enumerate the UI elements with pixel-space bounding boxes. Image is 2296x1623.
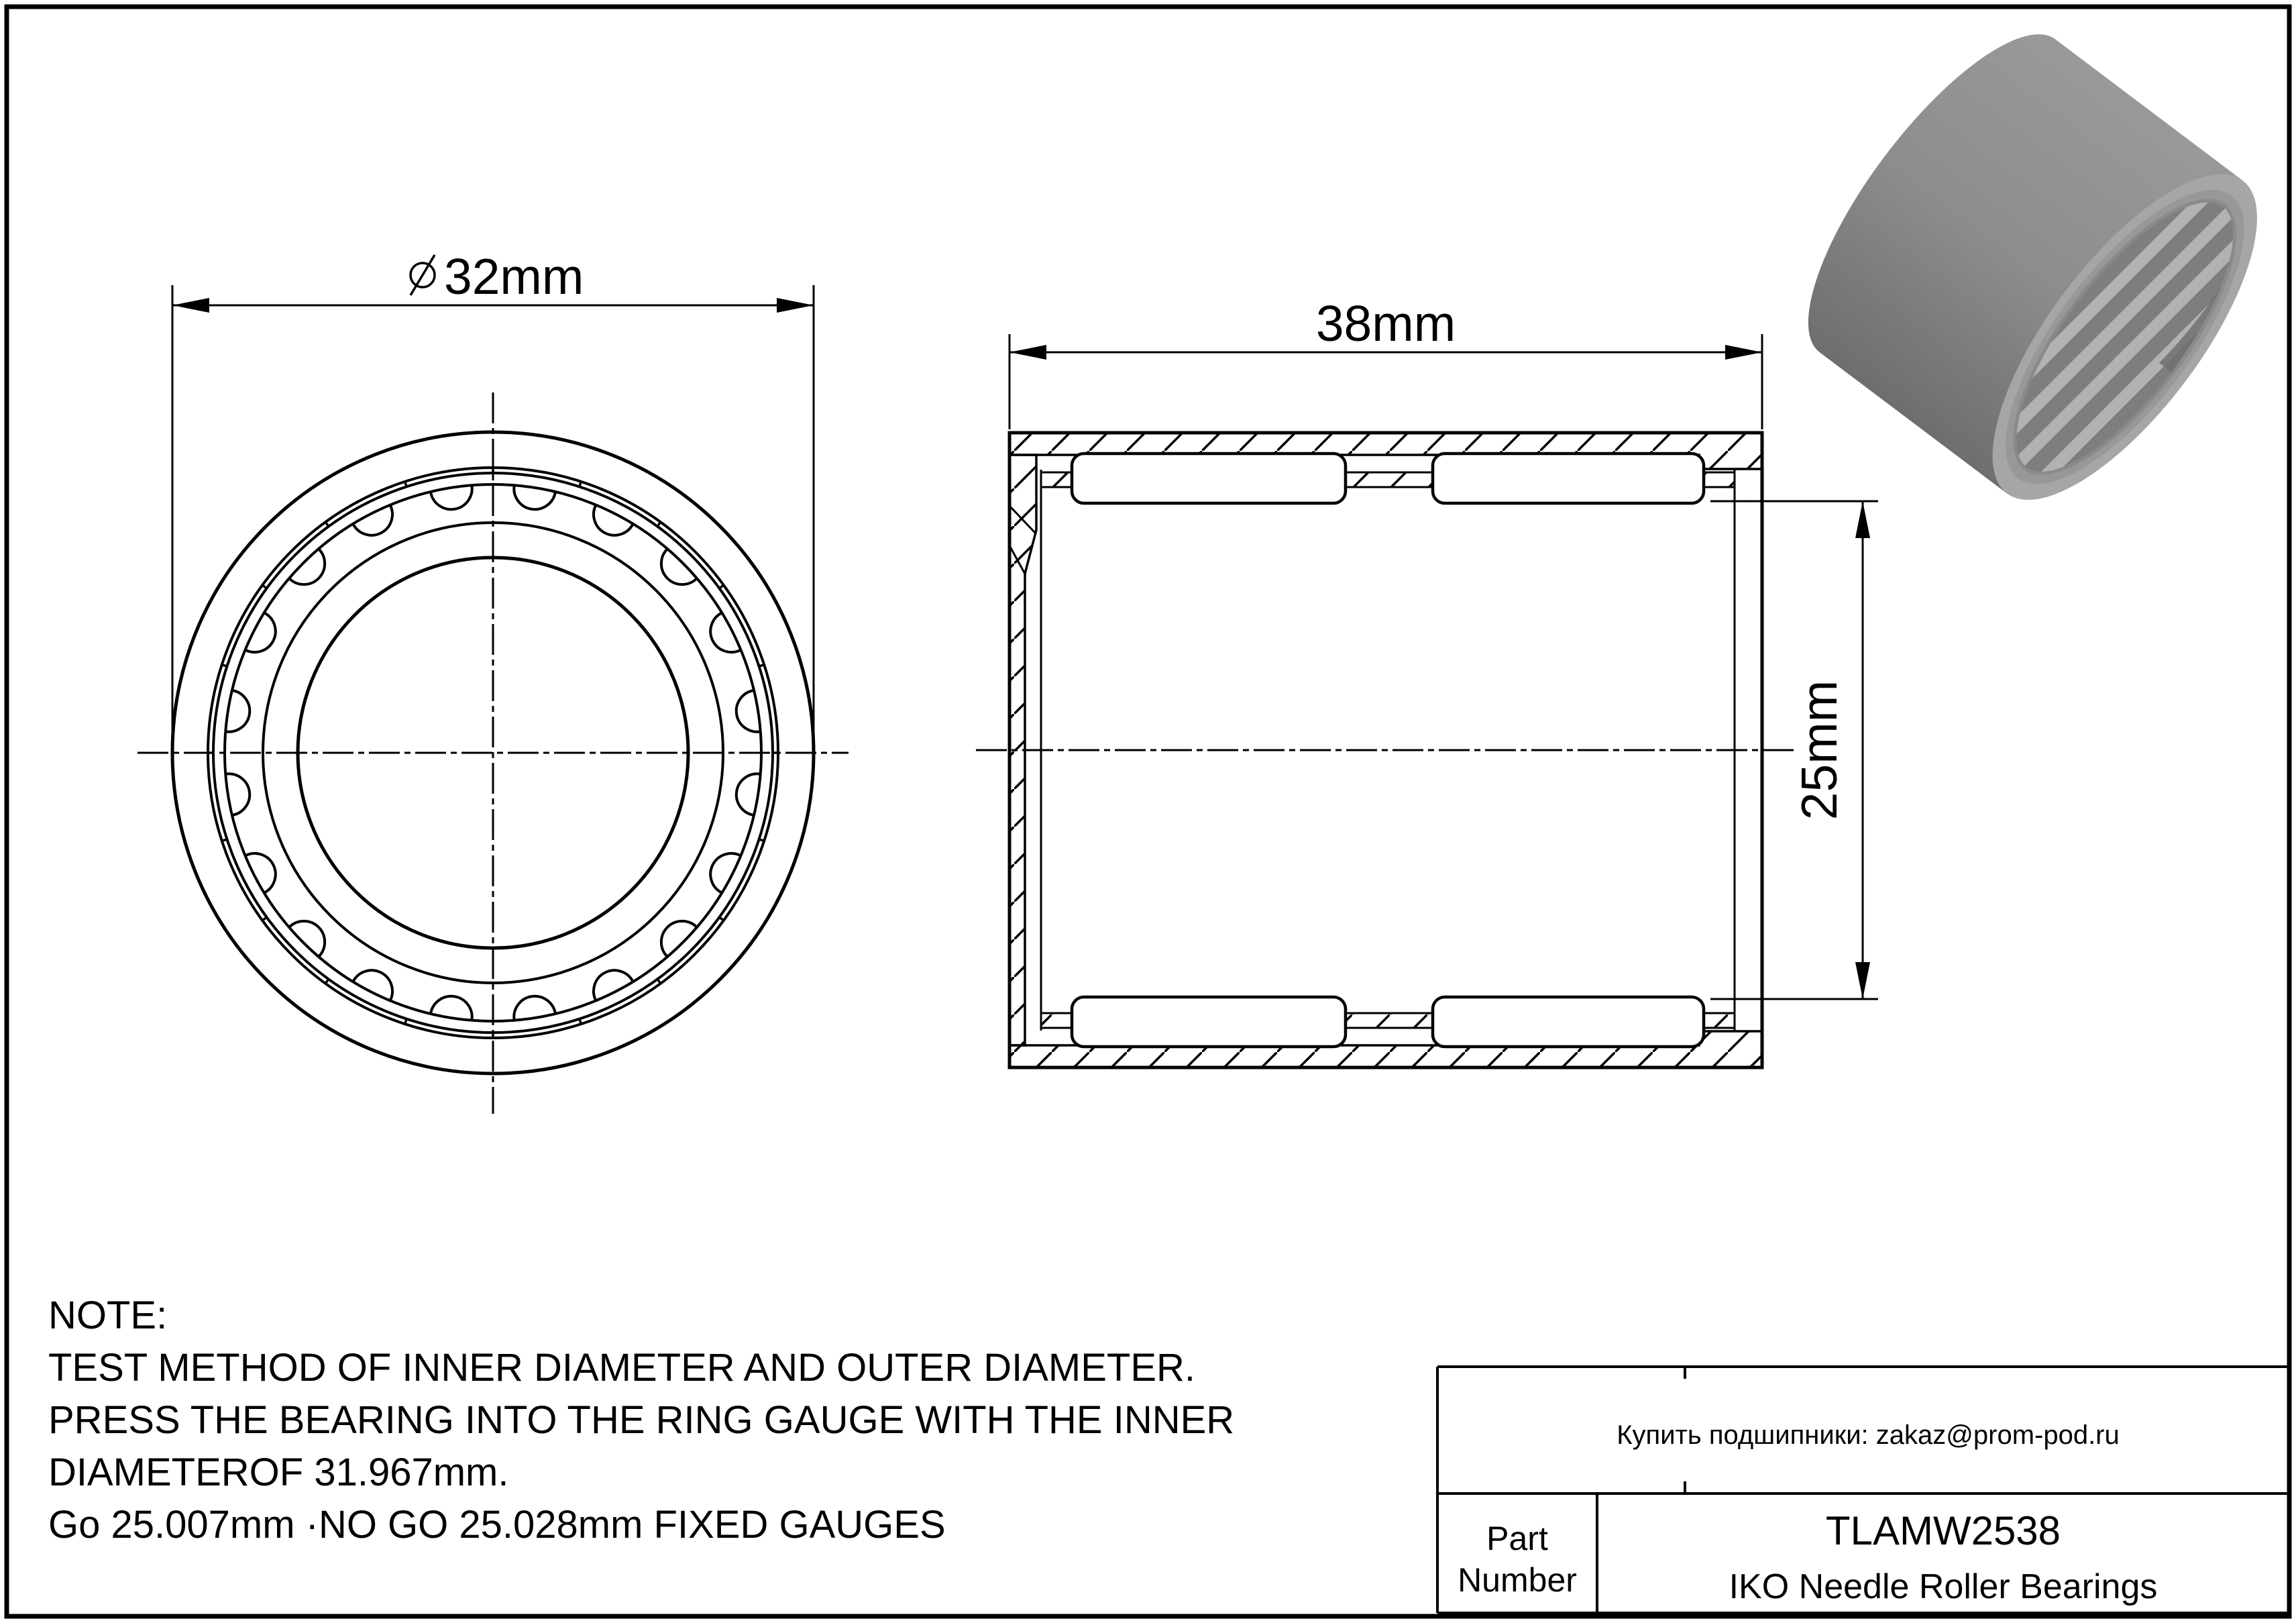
section-view <box>976 433 1798 1067</box>
diameter-symbol-icon <box>411 255 435 295</box>
arrow-down <box>1855 962 1870 999</box>
bearing-3d-render <box>1767 0 2296 542</box>
bore-dimension-label: 25mm <box>1791 680 1847 820</box>
note-line-2: TEST METHOD OF INNER DIAMETER AND OUTER … <box>48 1346 1195 1390</box>
note-line-1: NOTE: <box>48 1294 167 1337</box>
arrow-right <box>1725 345 1762 360</box>
part-label-line2: Number <box>1458 1561 1577 1599</box>
contact-text: Купить подшипники: zakaz@prom-pod.ru <box>1617 1420 2120 1450</box>
od-dimension-label: 32mm <box>444 248 584 305</box>
technical-drawing-canvas: 32mm <box>0 0 2296 1623</box>
part-label-line1: Part <box>1486 1520 1548 1557</box>
front-view <box>138 392 849 1114</box>
arrow-left <box>1009 345 1046 360</box>
note-line-4: DIAMETEROF 31.967mm. <box>48 1451 508 1494</box>
note: NOTE: TEST METHOD OF INNER DIAMETER AND … <box>48 1294 1234 1547</box>
title-block: Купить подшипники: zakaz@prom-pod.ru Par… <box>1437 1367 2289 1613</box>
arrow-left <box>172 298 209 313</box>
arrow-up <box>1855 501 1870 538</box>
arrow-right <box>777 298 814 313</box>
part-description: IKO Needle Roller Bearings <box>1729 1567 2158 1606</box>
note-line-5: Go 25.007mm ·NO GO 25.028mm FIXED GAUGES <box>48 1503 946 1547</box>
part-number: TLAMW2538 <box>1826 1508 2061 1553</box>
front-centerlines <box>138 392 849 1114</box>
width-dimension-label: 38mm <box>1316 295 1456 352</box>
note-line-3: PRESS THE BEARING INTO THE RING GAUGE WI… <box>48 1398 1234 1442</box>
dimension-width: 38mm <box>1009 295 1762 429</box>
